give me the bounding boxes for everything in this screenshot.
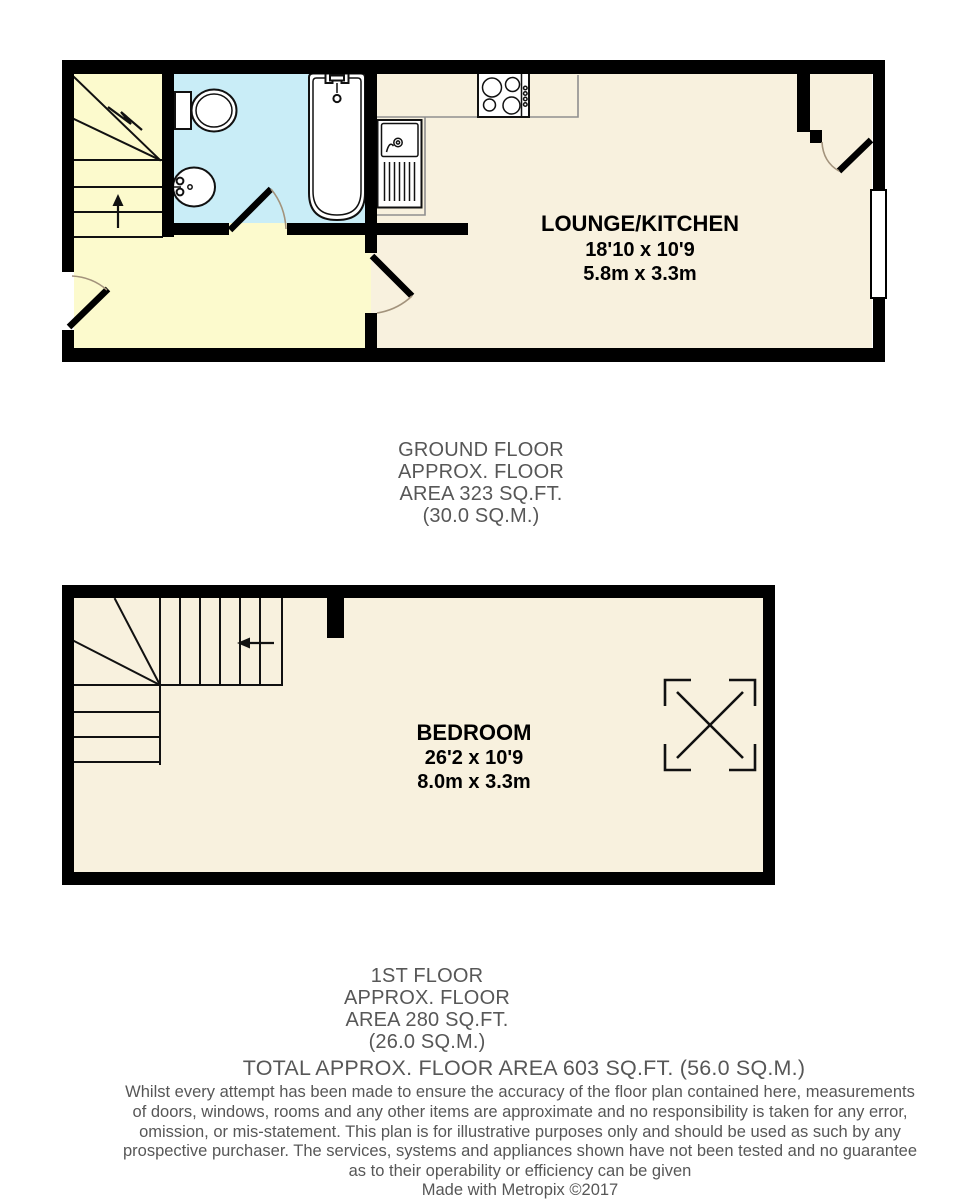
disclaimer-line: Whilst every attempt has been made to en… <box>70 1083 962 1103</box>
first-floor-caption: 1ST FLOOR APPROX. FLOOR AREA 280 SQ.FT. … <box>227 965 627 1053</box>
room-size-metric: 8.0m x 3.3m <box>417 771 530 793</box>
disclaimer-line: of doors, windows, rooms and any other i… <box>70 1103 962 1123</box>
bedroom-label: BEDROOM 26'2 x 10'9 8.0m x 3.3m <box>417 720 532 793</box>
toilet-symbol <box>175 90 237 132</box>
disclaimer-text: Whilst every attempt has been made to en… <box>70 1083 962 1182</box>
basin-symbol <box>173 168 215 207</box>
caption-line: AREA 323 SQ.FT. <box>281 483 681 505</box>
ground-floor-plan: LOUNGE/KITCHEN 18'10 x 10'9 5.8m x 3.3m <box>55 55 890 367</box>
room-size-imperial: 26'2 x 10'9 <box>425 747 524 769</box>
caption-line: 1ST FLOOR <box>227 965 627 987</box>
credit-line: Made with Metropix ©2017 <box>70 1181 962 1200</box>
disclaimer-line: omission, or mis-statement. This plan is… <box>70 1123 962 1143</box>
kitchen-sink-symbol <box>378 120 422 208</box>
caption-line: APPROX. FLOOR <box>227 987 627 1009</box>
room-name: BEDROOM <box>417 720 532 745</box>
window-symbol <box>871 190 886 298</box>
room-name: LOUNGE/KITCHEN <box>541 211 739 236</box>
ground-floor-caption: GROUND FLOOR APPROX. FLOOR AREA 323 SQ.F… <box>281 439 681 527</box>
caption-line: (26.0 SQ.M.) <box>227 1031 627 1053</box>
disclaimer-line: prospective purchaser. The services, sys… <box>70 1142 962 1162</box>
caption-line: AREA 280 SQ.FT. <box>227 1009 627 1031</box>
total-area-line: TOTAL APPROX. FLOOR AREA 603 SQ.FT. (56.… <box>74 1057 962 1080</box>
caption-line: GROUND FLOOR <box>281 439 681 461</box>
hob-symbol <box>478 73 529 118</box>
floorplan-page: LOUNGE/KITCHEN 18'10 x 10'9 5.8m x 3.3m … <box>0 0 962 1200</box>
bath-symbol <box>309 74 365 221</box>
disclaimer-line: as to their operability or efficiency ca… <box>70 1162 962 1182</box>
caption-line: APPROX. FLOOR <box>281 461 681 483</box>
room-size-metric: 5.8m x 3.3m <box>583 263 696 285</box>
caption-line: (30.0 SQ.M.) <box>281 505 681 527</box>
sink-drainer-lines <box>385 162 415 201</box>
room-size-imperial: 18'10 x 10'9 <box>585 239 695 261</box>
first-floor-plan: BEDROOM 26'2 x 10'9 8.0m x 3.3m <box>55 578 780 890</box>
